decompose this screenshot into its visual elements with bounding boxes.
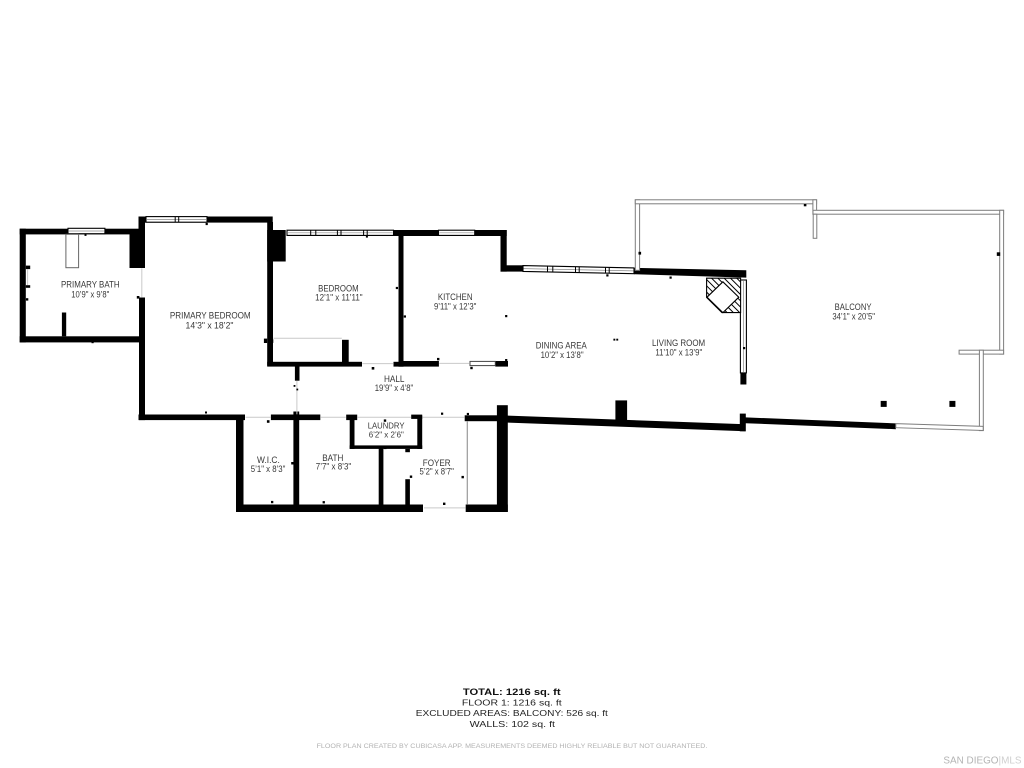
svg-text:19’9" x 4’8": 19’9" x 4’8" <box>375 383 414 393</box>
svg-text:5’1" x 8’3": 5’1" x 8’3" <box>251 464 286 474</box>
svg-text:SAN DIEGO|MLS: SAN DIEGO|MLS <box>943 755 1022 766</box>
svg-text:10’9" x 9’8": 10’9" x 9’8" <box>71 289 109 299</box>
svg-text:6’2" x 2’6": 6’2" x 2’6" <box>369 431 404 440</box>
svg-text:10’2" x 13’8": 10’2" x 13’8" <box>541 350 584 360</box>
svg-text:PRIMARY BEDROOM: PRIMARY BEDROOM <box>170 310 251 321</box>
svg-text:12’1" x 11’11": 12’1" x 11’11" <box>315 293 363 303</box>
svg-text:9’11" x 12’3": 9’11" x 12’3" <box>434 302 477 312</box>
svg-text:7’7" x 8’3": 7’7" x 8’3" <box>316 461 352 471</box>
svg-text:WALLS: 102 sq. ft: WALLS: 102 sq. ft <box>470 719 556 729</box>
svg-text:EXCLUDED AREAS: BALCONY: 526 s: EXCLUDED AREAS: BALCONY: 526 sq. ft <box>416 708 609 718</box>
svg-text:LAUNDRY: LAUNDRY <box>368 421 405 431</box>
svg-text:34’1" x 20’5": 34’1" x 20’5" <box>832 311 875 321</box>
svg-text:TOTAL: 1216 sq. ft: TOTAL: 1216 sq. ft <box>463 687 561 697</box>
svg-text:FLOOR 1: 1216 sq. ft: FLOOR 1: 1216 sq. ft <box>462 698 563 708</box>
svg-text:5’2" x 8’7": 5’2" x 8’7" <box>420 467 454 477</box>
svg-text:11’10" x 13’9": 11’10" x 13’9" <box>655 347 702 357</box>
svg-text:FLOOR PLAN CREATED BY CUBICASA: FLOOR PLAN CREATED BY CUBICASA APP. MEAS… <box>317 743 708 750</box>
svg-text:14’3" x 18’2": 14’3" x 18’2" <box>186 321 234 331</box>
